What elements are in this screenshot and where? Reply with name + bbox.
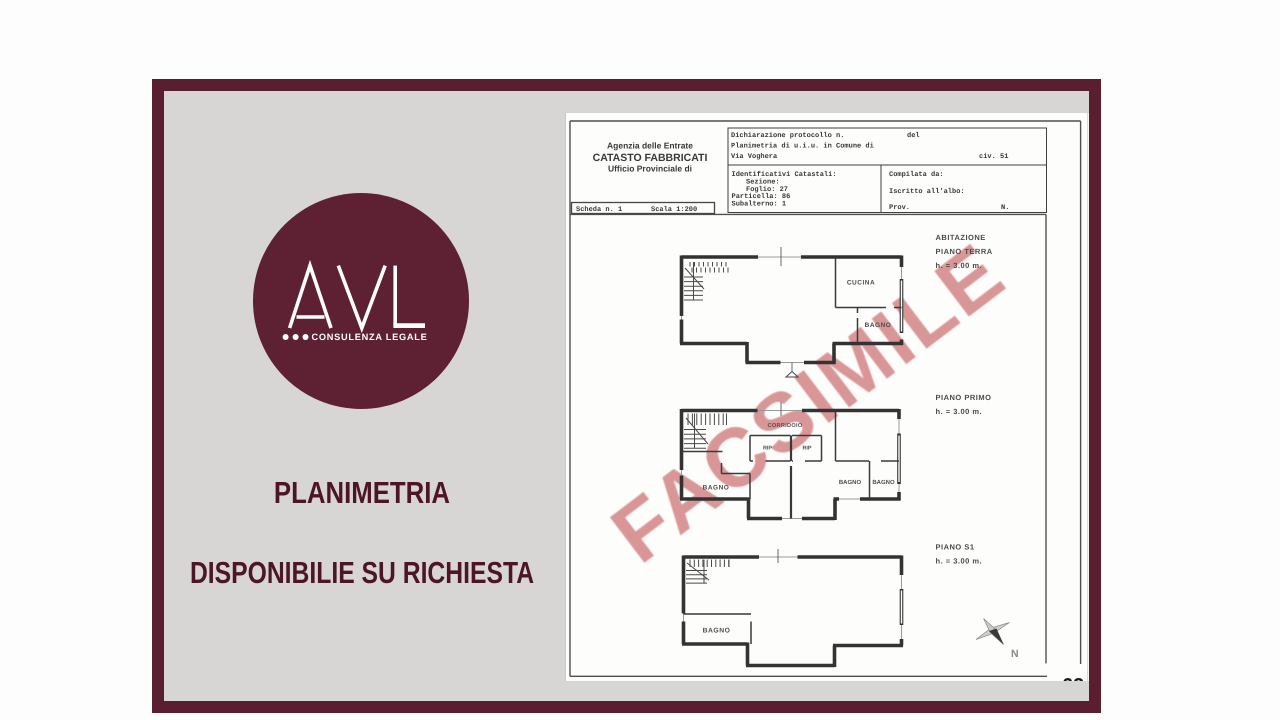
svg-text:del: del — [907, 131, 920, 140]
svg-text:63: 63 — [1062, 675, 1084, 681]
svg-text:BAGNO: BAGNO — [839, 479, 862, 486]
svg-text:BAGNO: BAGNO — [872, 479, 895, 486]
svg-text:N: N — [1011, 648, 1019, 660]
svg-text:RIP: RIP — [803, 446, 812, 452]
svg-text:Compilata da:: Compilata da: — [889, 170, 944, 179]
svg-text:CATASTO FABBRICATI: CATASTO FABBRICATI — [593, 152, 708, 164]
svg-text:h. = 3.00 m.: h. = 3.00 m. — [936, 261, 983, 270]
svg-text:Dichiarazione protocollo n.: Dichiarazione protocollo n. — [731, 131, 844, 140]
svg-text:CUCINA: CUCINA — [847, 280, 875, 287]
svg-text:h. = 3.00 m.: h. = 3.00 m. — [936, 407, 983, 416]
svg-text:CORRIDOIO: CORRIDOIO — [767, 423, 802, 429]
svg-text:PIANO S1: PIANO S1 — [936, 543, 975, 552]
svg-text:BAGNO: BAGNO — [865, 322, 892, 329]
svg-text:PIANO PRIMO: PIANO PRIMO — [936, 393, 992, 402]
svg-text:Iscritto all'albo:: Iscritto all'albo: — [889, 187, 965, 196]
svg-text:BAGNO: BAGNO — [703, 628, 731, 635]
svg-text:ABITAZIONE: ABITAZIONE — [936, 233, 986, 242]
svg-text:Subalterno: 1: Subalterno: 1 — [732, 200, 787, 209]
svg-text:Scheda n. 1: Scheda n. 1 — [576, 205, 622, 214]
svg-text:Planimetria di u.i.u. in Comun: Planimetria di u.i.u. in Comune di — [731, 142, 874, 151]
svg-text:RIP: RIP — [763, 446, 772, 452]
svg-text:N.: N. — [1001, 204, 1009, 212]
svg-text:Scala 1:200: Scala 1:200 — [651, 205, 697, 214]
svg-text:civ. 51: civ. 51 — [979, 152, 1008, 161]
svg-text:BAGNO: BAGNO — [703, 485, 730, 492]
svg-text:Agenzia delle Entrate: Agenzia delle Entrate — [607, 141, 693, 151]
svg-text:PIANO TERRA: PIANO TERRA — [936, 247, 993, 256]
svg-text:Ufficio Provinciale di: Ufficio Provinciale di — [608, 164, 692, 174]
svg-text:h. = 3.00 m.: h. = 3.00 m. — [936, 557, 983, 566]
svg-text:Via Voghera: Via Voghera — [731, 152, 778, 161]
svg-text:CONSULENZA LEGALE: CONSULENZA LEGALE — [312, 332, 428, 342]
svg-text:Prov.: Prov. — [889, 204, 910, 212]
